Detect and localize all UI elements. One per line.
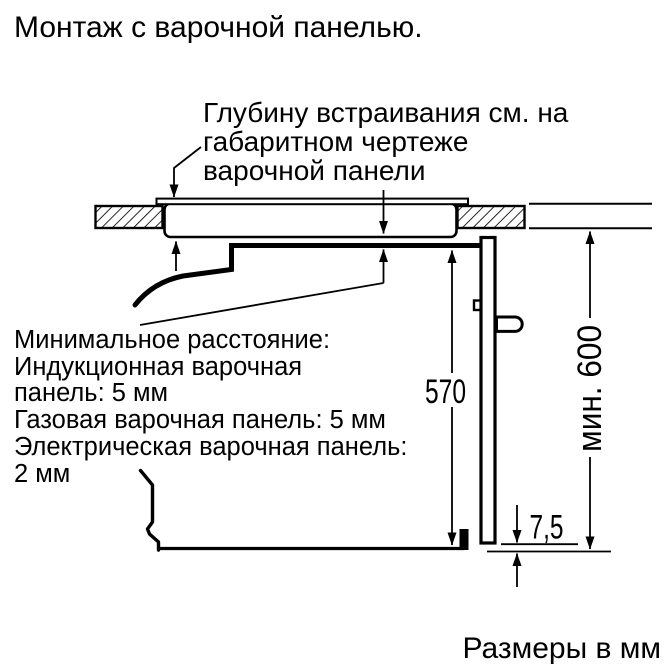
- dim-7-5: 7,5: [487, 505, 611, 587]
- hob-top-lip: [157, 199, 469, 205]
- cabinet-front-profile: [141, 471, 159, 551]
- hob: [157, 199, 469, 237]
- installation-diagram: 570 мин. 600 7,5: [0, 0, 671, 672]
- dim-570-label: 570: [425, 373, 466, 411]
- worktop-right-section: [458, 206, 525, 228]
- dim-7-5-label: 7,5: [530, 509, 564, 547]
- door-handle: [497, 317, 523, 331]
- door-front-panel: [481, 238, 495, 544]
- min-distance-arrows: [140, 242, 384, 326]
- worktop-left-section: [96, 206, 163, 228]
- dim-570: 570: [425, 251, 466, 546]
- dim-600-label: мин. 600: [571, 325, 609, 452]
- dim-min-600: мин. 600: [571, 232, 609, 550]
- hob-body: [165, 204, 457, 238]
- oven-door: [474, 238, 522, 544]
- hob-depth-leader-left-arrow: [174, 147, 201, 197]
- oven-bottom-front-edge: [460, 529, 469, 550]
- min-distance-leader-line: [140, 283, 384, 325]
